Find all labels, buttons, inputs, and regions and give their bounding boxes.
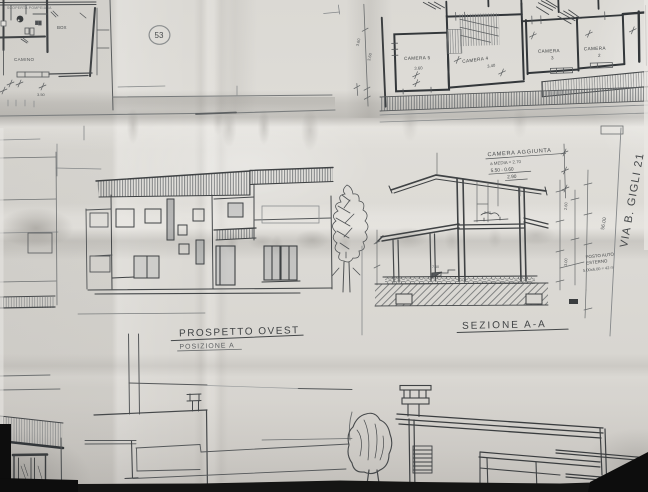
svg-text:ESTERNO: ESTERNO xyxy=(586,258,608,265)
svg-text:PROSPETTO OVEST: PROSPETTO OVEST xyxy=(179,325,300,339)
svg-text:3.40: 3.40 xyxy=(487,63,496,69)
svg-text:CAMERA 4: CAMERA 4 xyxy=(462,55,489,64)
svg-text:SCOPERTA POMPEIANA: SCOPERTA POMPEIANA xyxy=(7,6,52,10)
svg-text:2.70: 2.70 xyxy=(484,211,491,215)
svg-text:2: 2 xyxy=(598,53,601,58)
svg-text:3: 3 xyxy=(551,55,554,60)
svg-text:56.00: 56.00 xyxy=(600,217,608,231)
svg-text:2.60: 2.60 xyxy=(563,201,569,210)
svg-text:VIA B. GIGLI 21: VIA B. GIGLI 21 xyxy=(618,152,647,249)
svg-text:BOX: BOX xyxy=(57,25,67,30)
svg-text:a MEDIA = 2.70: a MEDIA = 2.70 xyxy=(490,159,522,166)
svg-text:CAMERA 5: CAMERA 5 xyxy=(404,55,431,61)
svg-text:7.60: 7.60 xyxy=(432,265,439,269)
svg-text:3.50: 3.50 xyxy=(37,92,46,97)
svg-text:3.00: 3.00 xyxy=(563,257,569,266)
svg-text:CAMERA: CAMERA xyxy=(584,46,607,52)
svg-text:5.00x6.00 = 42 m: 5.00x6.00 = 42 m xyxy=(583,265,615,273)
svg-text:CAMINO: CAMINO xyxy=(14,57,34,62)
svg-text:2.90: 2.90 xyxy=(507,174,517,181)
svg-text:CAMERA: CAMERA xyxy=(538,48,561,54)
svg-text:3.60: 3.60 xyxy=(414,65,423,70)
svg-text:53: 53 xyxy=(155,31,164,40)
